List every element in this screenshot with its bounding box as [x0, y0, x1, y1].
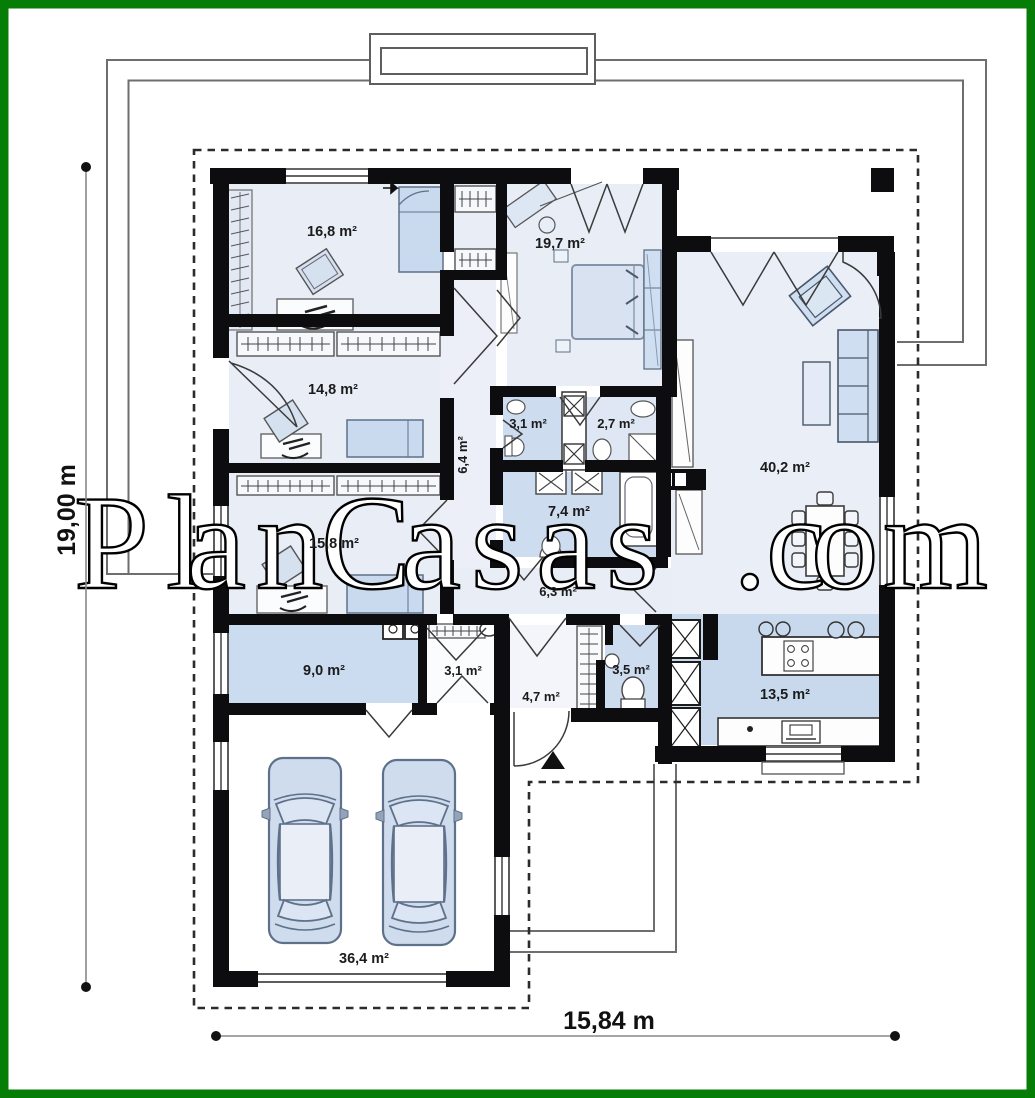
svg-text:19,00 m: 19,00 m — [53, 464, 81, 556]
svg-text:15,84 m: 15,84 m — [563, 1007, 655, 1035]
svg-text:3,1 m²: 3,1 m² — [509, 416, 547, 431]
svg-text:16,8 m²: 16,8 m² — [307, 224, 357, 240]
svg-text:19,7 m²: 19,7 m² — [535, 236, 585, 252]
svg-text:9,0 m²: 9,0 m² — [303, 663, 345, 679]
svg-text:14,8 m²: 14,8 m² — [308, 382, 358, 398]
svg-text:3,1 m²: 3,1 m² — [444, 663, 482, 678]
svg-text:4,7 m²: 4,7 m² — [522, 689, 560, 704]
svg-text:7,4 m²: 7,4 m² — [548, 504, 590, 520]
svg-text:36,4 m²: 36,4 m² — [339, 951, 389, 967]
svg-text:13,5 m²: 13,5 m² — [760, 687, 810, 703]
svg-text:2,7 m²: 2,7 m² — [597, 416, 635, 431]
svg-text:40,2 m²: 40,2 m² — [760, 460, 810, 476]
svg-text:6,3 m²: 6,3 m² — [539, 584, 577, 599]
svg-text:3,5 m²: 3,5 m² — [612, 662, 650, 677]
svg-text:6,4 m²: 6,4 m² — [455, 436, 470, 474]
svg-text:15,8 m²: 15,8 m² — [309, 536, 359, 552]
